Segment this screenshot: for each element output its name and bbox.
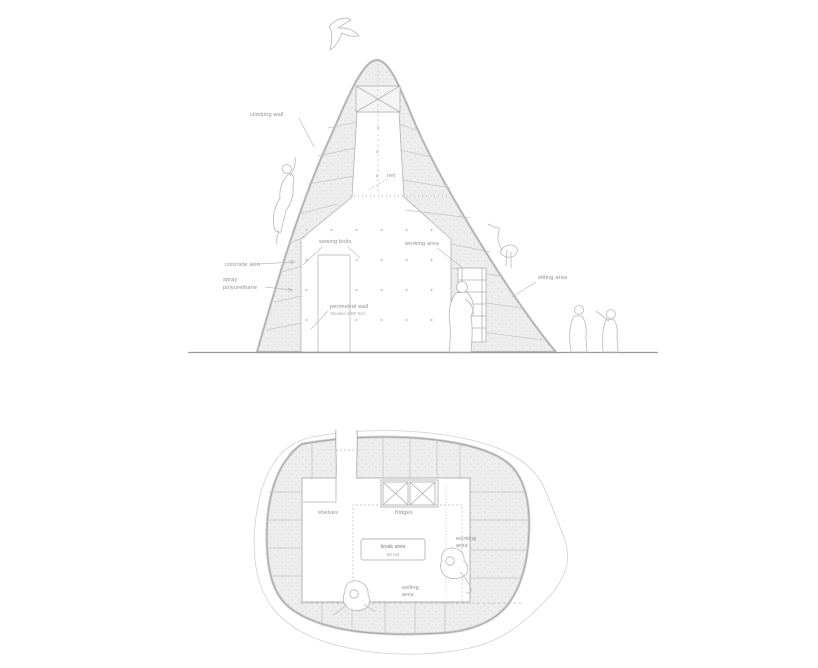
architectural-drawing: climbing wall net sewing bolts working a…: [0, 0, 818, 668]
floor-plan-drawing: shelves fridges kiosk area 10 m2 working…: [254, 430, 567, 654]
label-spray: spray: [223, 277, 237, 283]
label-working-area-plan-1: working: [455, 536, 476, 542]
label-climbing-wall: climbing wall: [250, 112, 284, 118]
section-drawing: climbing wall net sewing bolts working a…: [188, 18, 658, 352]
label-fridges: fridges: [395, 510, 413, 516]
drawing-page: climbing wall net sewing bolts working a…: [0, 0, 818, 668]
label-kiosk-area: kiosk area: [381, 544, 406, 550]
entrance-gap: [336, 430, 357, 479]
label-polyurethane: polyurethane: [223, 285, 257, 291]
label-sewing-bolts: sewing bolts: [319, 239, 352, 245]
label-shelves: shelves: [318, 510, 338, 516]
pedestrian-figures: [570, 306, 618, 353]
label-concrete-skin: concrete skin: [225, 262, 260, 268]
label-working-area-section: working area: [404, 241, 440, 247]
fridge-units: [381, 480, 438, 507]
flying-bird: [329, 18, 359, 50]
label-working-area-plan-2: area: [456, 543, 469, 549]
climber-figure: [273, 157, 295, 244]
label-selling-area-1: selling: [402, 585, 419, 591]
label-perimetral-wall: perimetral wall: [330, 304, 368, 310]
label-net: net: [387, 173, 396, 179]
label-selling-area-2: area: [402, 592, 415, 598]
label-kiosk-area-size: 10 m2: [387, 552, 400, 557]
label-perimetral-wall-detail: Wooden MDF 5cm: [330, 311, 366, 316]
label-sitting-area: sitting area: [538, 275, 568, 281]
